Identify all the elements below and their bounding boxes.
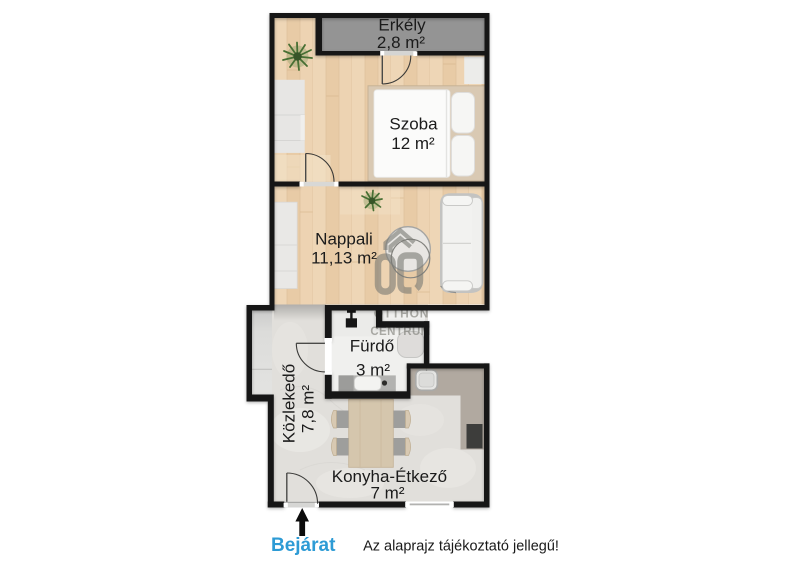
svg-text:2,8 m²: 2,8 m² (377, 33, 426, 52)
svg-text:7 m²: 7 m² (371, 484, 405, 503)
svg-text:Közlekedő: Közlekedő (280, 364, 299, 443)
svg-text:7,8 m²: 7,8 m² (299, 385, 318, 434)
svg-text:3 m²: 3 m² (356, 361, 390, 380)
svg-text:Nappali: Nappali (315, 230, 373, 249)
svg-text:Szoba: Szoba (389, 115, 438, 134)
svg-text:11,13 m²: 11,13 m² (311, 249, 377, 268)
svg-text:Bejárat: Bejárat (271, 535, 336, 556)
svg-text:Erkély: Erkély (378, 16, 426, 35)
svg-text:Az alaprajz tájékoztató jelleg: Az alaprajz tájékoztató jellegű! (363, 539, 559, 555)
svg-text:Fürdő: Fürdő (350, 337, 394, 356)
svg-text:12 m²: 12 m² (391, 134, 435, 153)
